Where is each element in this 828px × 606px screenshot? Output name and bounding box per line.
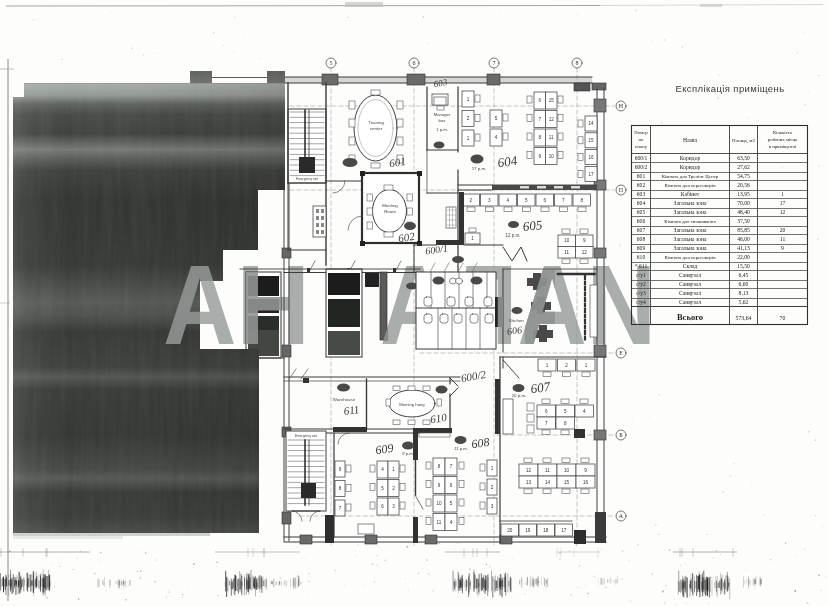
svg-text:607: 607 xyxy=(530,379,552,397)
svg-text:15,50: 15,50 xyxy=(737,263,750,269)
svg-text:37,50: 37,50 xyxy=(737,218,750,224)
svg-text:Всього: Всього xyxy=(677,312,703,322)
svg-text:8: 8 xyxy=(438,464,441,469)
svg-text:10: 10 xyxy=(564,468,570,473)
svg-text:1: 1 xyxy=(471,236,474,241)
svg-text:1: 1 xyxy=(491,466,494,471)
svg-text:4: 4 xyxy=(495,135,498,140)
svg-text:7: 7 xyxy=(339,506,342,511)
svg-text:606: 606 xyxy=(637,218,646,224)
svg-text:Warehouse: Warehouse xyxy=(333,397,356,402)
svg-text:Н: Н xyxy=(619,103,624,109)
svg-text:10: 10 xyxy=(564,238,570,243)
svg-text:20: 20 xyxy=(507,528,513,533)
svg-text:с/у2: с/у2 xyxy=(636,281,646,287)
svg-text:11 p.m.: 11 p.m. xyxy=(454,446,468,451)
svg-text:609: 609 xyxy=(637,245,646,251)
svg-text:602: 602 xyxy=(397,230,416,244)
svg-text:9: 9 xyxy=(584,468,587,473)
svg-text:П: П xyxy=(619,187,624,193)
svg-text:20: 20 xyxy=(780,227,786,233)
svg-text:3: 3 xyxy=(491,504,494,509)
svg-text:5: 5 xyxy=(525,198,528,203)
svg-text:Кількість: Кількість xyxy=(773,130,793,135)
svg-text:с/у3: с/у3 xyxy=(636,290,646,296)
svg-text:3: 3 xyxy=(488,198,491,203)
svg-text:17: 17 xyxy=(780,200,786,206)
svg-text:Е: Е xyxy=(619,350,623,356)
svg-text:Manager: Manager xyxy=(434,112,451,117)
svg-text:16: 16 xyxy=(583,480,589,485)
svg-text:5,62: 5,62 xyxy=(739,299,749,305)
svg-text:607: 607 xyxy=(637,227,646,233)
svg-text:3: 3 xyxy=(392,504,395,509)
svg-text:15: 15 xyxy=(549,98,555,103)
svg-text:41,13: 41,13 xyxy=(737,245,750,251)
svg-text:Санвузол: Санвузол xyxy=(679,290,701,296)
svg-text:Загальна зона: Загальна зона xyxy=(674,236,707,242)
svg-text:13: 13 xyxy=(526,480,532,485)
svg-text:8: 8 xyxy=(564,421,567,426)
svg-text:Кімната для переговорів: Кімната для переговорів xyxy=(665,183,717,188)
svg-text:Room: Room xyxy=(384,209,396,214)
svg-text:Kitchen: Kitchen xyxy=(509,318,524,323)
svg-text:робочих місць: робочих місць xyxy=(768,137,798,142)
svg-text:22,00: 22,00 xyxy=(737,254,750,260)
svg-text:15: 15 xyxy=(588,138,594,143)
svg-text:2: 2 xyxy=(469,198,472,203)
svg-text:15: 15 xyxy=(564,480,570,485)
svg-text:Training: Training xyxy=(368,120,384,125)
svg-text:9: 9 xyxy=(781,245,784,251)
svg-text:5: 5 xyxy=(330,60,333,66)
svg-text:9: 9 xyxy=(583,238,586,243)
svg-text:6: 6 xyxy=(381,504,384,509)
svg-text:5: 5 xyxy=(564,409,567,414)
svg-text:Номер: Номер xyxy=(634,130,648,135)
svg-text:6: 6 xyxy=(545,409,548,414)
svg-text:6,60: 6,60 xyxy=(739,281,749,287)
svg-text:17: 17 xyxy=(561,528,567,533)
svg-text:в приміщенні: в приміщенні xyxy=(769,144,797,149)
svg-text:5: 5 xyxy=(495,116,498,121)
svg-text:11: 11 xyxy=(564,250,569,255)
svg-text:8: 8 xyxy=(339,486,342,491)
svg-text:6: 6 xyxy=(450,483,453,488)
svg-text:600/2: 600/2 xyxy=(635,164,648,170)
svg-text:Санвузол: Санвузол xyxy=(679,281,701,287)
svg-text:6: 6 xyxy=(543,198,546,203)
svg-text:1: 1 xyxy=(781,191,784,197)
svg-text:70: 70 xyxy=(780,315,786,321)
svg-text:4: 4 xyxy=(381,467,384,472)
svg-text:8: 8 xyxy=(580,198,583,203)
svg-text:601: 601 xyxy=(388,155,406,169)
svg-text:Коридор: Коридор xyxy=(680,164,701,170)
svg-text:по: по xyxy=(639,137,645,142)
svg-text:11: 11 xyxy=(437,520,442,525)
svg-text:8: 8 xyxy=(538,135,541,140)
svg-text:Emergency exit: Emergency exit xyxy=(295,434,317,438)
svg-text:605: 605 xyxy=(522,217,543,234)
svg-text:7: 7 xyxy=(538,117,541,122)
svg-text:85,85: 85,85 xyxy=(737,227,750,233)
svg-text:9: 9 xyxy=(438,483,441,488)
svg-text:Санвузол: Санвузол xyxy=(679,272,701,278)
svg-text:9: 9 xyxy=(339,467,342,472)
svg-text:10: 10 xyxy=(549,154,555,159)
svg-text:center: center xyxy=(370,126,383,131)
svg-text:6: 6 xyxy=(413,60,416,66)
svg-text:Кімната для споживання: Кімната для споживання xyxy=(664,219,716,224)
svg-text:609: 609 xyxy=(375,441,395,457)
svg-text:63,50: 63,50 xyxy=(737,155,750,161)
svg-text:7: 7 xyxy=(493,60,496,66)
svg-text:608: 608 xyxy=(471,435,491,451)
svg-text:Кімната для Тренінг Центр: Кімната для Тренінг Центр xyxy=(662,174,719,179)
svg-text:46,00: 46,00 xyxy=(737,236,750,242)
svg-text:11: 11 xyxy=(545,468,550,473)
svg-text:2: 2 xyxy=(565,363,568,368)
svg-text:70,00: 70,00 xyxy=(737,200,750,206)
svg-text:4: 4 xyxy=(450,520,453,525)
svg-text:27,62: 27,62 xyxy=(737,164,750,170)
svg-text:604: 604 xyxy=(637,200,646,206)
svg-text:с/у4: с/у4 xyxy=(636,299,646,305)
svg-text:18: 18 xyxy=(543,528,549,533)
svg-text:6,45: 6,45 xyxy=(739,272,749,278)
svg-text:605: 605 xyxy=(637,209,646,215)
svg-text:10: 10 xyxy=(436,501,442,506)
svg-text:Експлікація приміщень: Експлікація приміщень xyxy=(675,83,784,94)
svg-text:Загальна зона: Загальна зона xyxy=(674,227,707,233)
svg-text:20,56: 20,56 xyxy=(737,182,750,188)
svg-text:Meeting hang: Meeting hang xyxy=(399,402,425,407)
svg-text:7: 7 xyxy=(450,464,453,469)
svg-text:Склад: Склад xyxy=(683,263,698,269)
svg-text:19: 19 xyxy=(525,528,531,533)
svg-text:1 p.m.: 1 p.m. xyxy=(436,127,448,132)
svg-text:Загальна зона: Загальна зона xyxy=(674,209,707,215)
svg-text:600/1: 600/1 xyxy=(635,155,648,161)
svg-text:Загальна зона: Загальна зона xyxy=(674,245,707,251)
svg-text:4: 4 xyxy=(583,409,586,414)
svg-text:17: 17 xyxy=(588,172,594,177)
svg-text:602: 602 xyxy=(637,182,646,188)
svg-text:7: 7 xyxy=(562,198,565,203)
svg-text:16: 16 xyxy=(588,155,594,160)
svg-text:box: box xyxy=(439,118,447,123)
svg-text:1: 1 xyxy=(467,97,470,102)
svg-text:12 p.m.: 12 p.m. xyxy=(505,233,520,238)
svg-text:1: 1 xyxy=(467,136,470,141)
svg-text:48,40: 48,40 xyxy=(737,209,750,215)
svg-text:12: 12 xyxy=(526,468,532,473)
svg-text:14: 14 xyxy=(545,480,551,485)
svg-text:610: 610 xyxy=(637,254,646,260)
svg-text:Коридор: Коридор xyxy=(680,155,701,161)
svg-text:11: 11 xyxy=(780,236,786,242)
svg-text:с/у1: с/у1 xyxy=(636,272,646,278)
svg-text:плану: плану xyxy=(635,144,648,149)
svg-text:54,75: 54,75 xyxy=(737,173,750,179)
svg-text:Кабінет: Кабінет xyxy=(681,191,700,197)
svg-text:14: 14 xyxy=(588,121,594,126)
svg-text:9 p.m.: 9 p.m. xyxy=(402,451,414,456)
svg-text:17 p.m.: 17 p.m. xyxy=(472,166,487,171)
svg-text:601: 601 xyxy=(637,173,646,179)
svg-text:11: 11 xyxy=(549,135,554,140)
svg-text:573,64: 573,64 xyxy=(736,315,752,321)
svg-text:8,13: 8,13 xyxy=(739,290,749,296)
svg-text:1: 1 xyxy=(546,363,549,368)
svg-text:Загальна зона: Загальна зона xyxy=(674,200,707,206)
svg-text:8: 8 xyxy=(576,60,579,66)
svg-text:6: 6 xyxy=(538,98,541,103)
svg-text:Санвузол: Санвузол xyxy=(679,299,701,305)
svg-text:12: 12 xyxy=(549,117,555,122)
svg-text:7: 7 xyxy=(545,421,548,426)
svg-text:1: 1 xyxy=(392,467,395,472)
svg-text:2: 2 xyxy=(467,116,470,121)
svg-text:Б: Б xyxy=(619,432,623,438)
svg-text:Meeting: Meeting xyxy=(382,203,398,208)
svg-text:603: 603 xyxy=(637,191,646,197)
svg-text:Кімната для переговорів: Кімната для переговорів xyxy=(665,255,717,260)
svg-text:А: А xyxy=(619,513,624,519)
svg-text:9: 9 xyxy=(538,154,541,159)
svg-text:2: 2 xyxy=(392,486,395,491)
svg-text:* 611: * 611 xyxy=(635,263,648,269)
svg-text:610: 610 xyxy=(429,411,448,425)
svg-text:4: 4 xyxy=(506,198,509,203)
svg-text:611: 611 xyxy=(343,403,360,417)
svg-text:12: 12 xyxy=(582,250,588,255)
svg-text:608: 608 xyxy=(637,236,646,242)
svg-text:13,95: 13,95 xyxy=(737,191,750,197)
svg-text:5: 5 xyxy=(450,501,453,506)
svg-text:Назва: Назва xyxy=(683,137,697,143)
svg-text:12: 12 xyxy=(780,209,786,215)
svg-text:604: 604 xyxy=(497,153,519,171)
svg-text:Emergency exit: Emergency exit xyxy=(296,177,318,181)
svg-text:2: 2 xyxy=(491,485,494,490)
svg-text:20 p.m.: 20 p.m. xyxy=(512,393,527,398)
svg-text:5: 5 xyxy=(381,486,384,491)
svg-text:1: 1 xyxy=(585,363,588,368)
svg-text:606: 606 xyxy=(506,324,522,337)
